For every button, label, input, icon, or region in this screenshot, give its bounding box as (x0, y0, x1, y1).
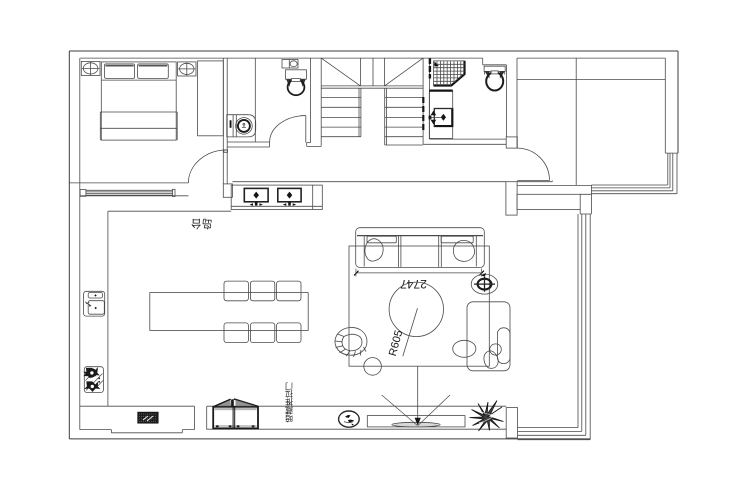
svg-text:岛台: 岛台 (191, 217, 213, 231)
svg-text:2747: 2747 (400, 277, 427, 291)
svg-text:暗藏推拉门: 暗藏推拉门 (285, 381, 294, 423)
